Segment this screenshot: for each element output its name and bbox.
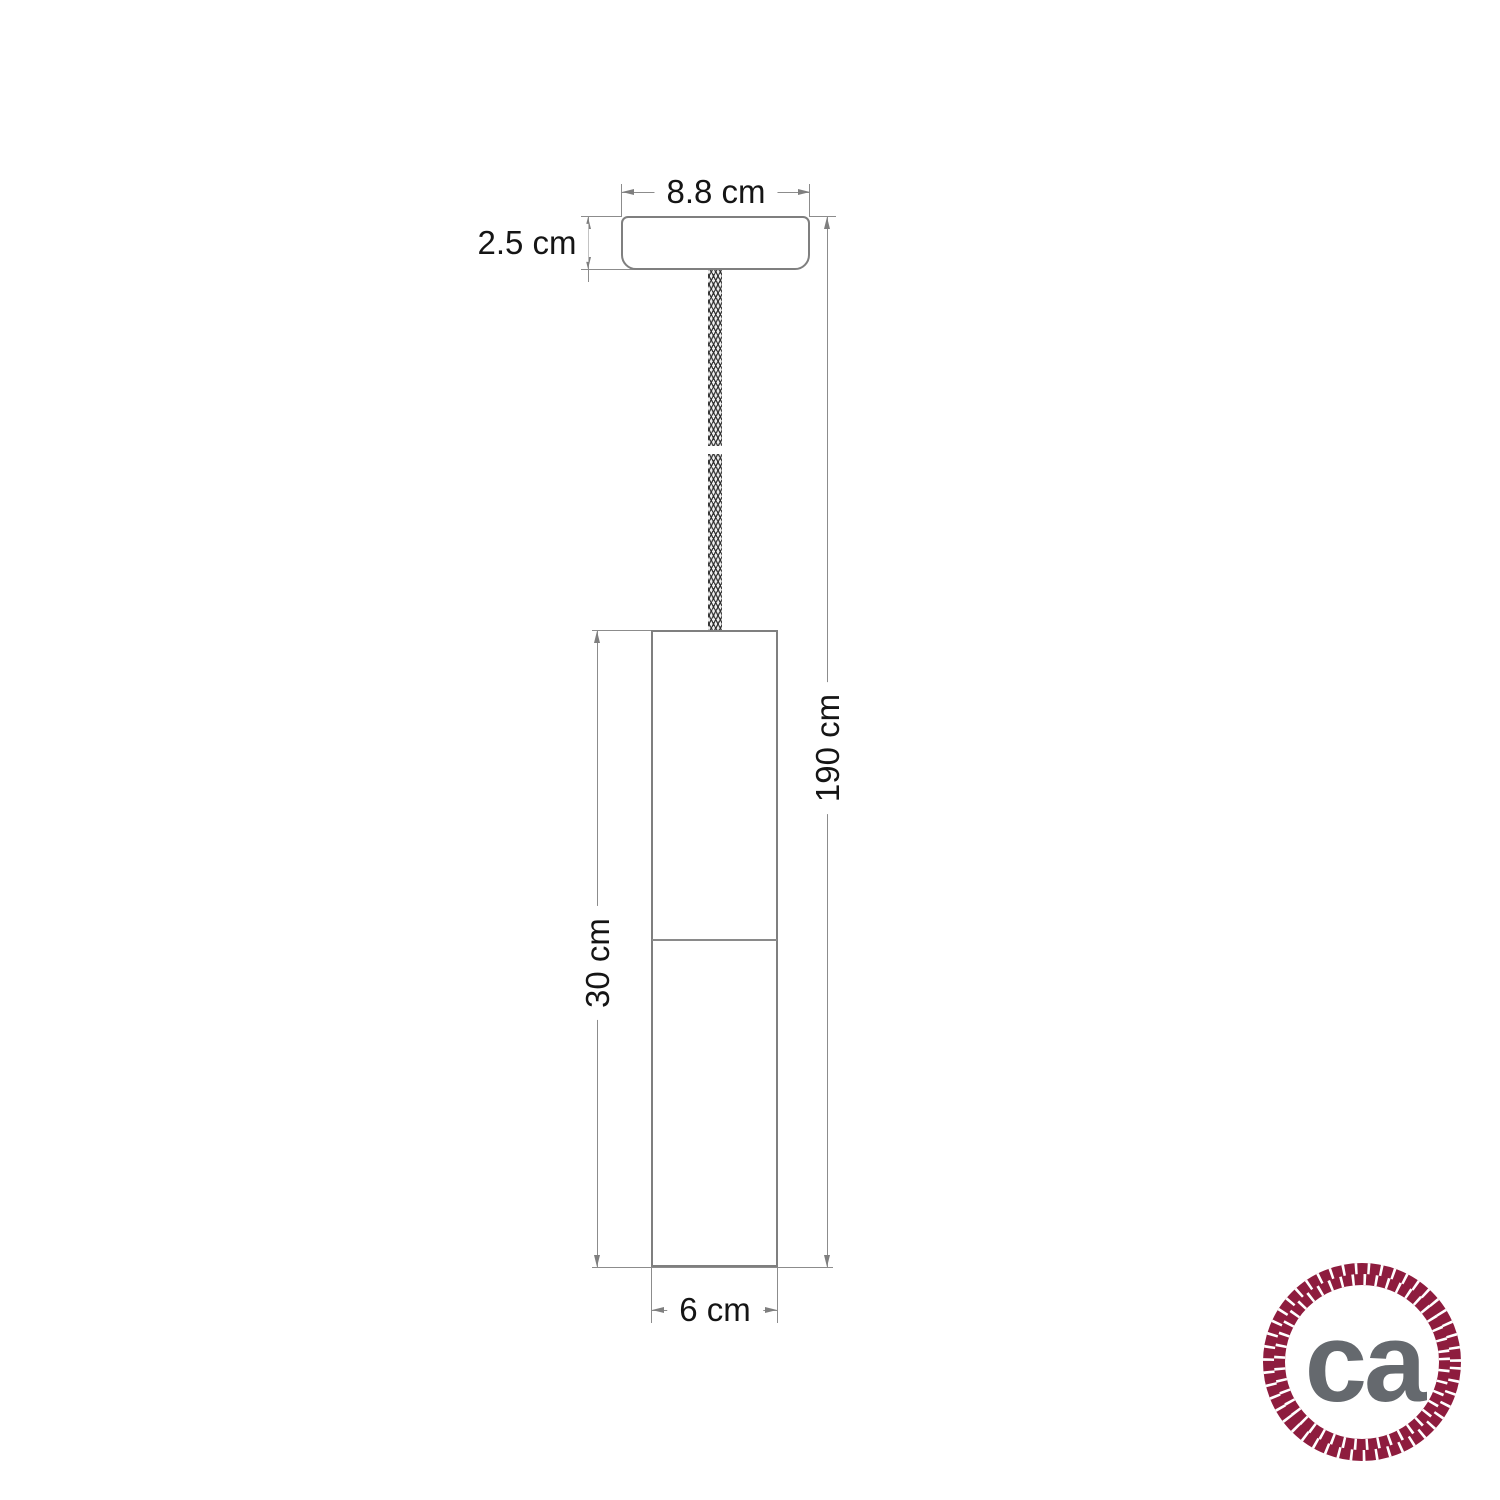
canopy-height-label: 2.5 cm xyxy=(465,224,588,262)
shade-height-label: 30 cm xyxy=(578,906,616,1020)
logo-letters: ca xyxy=(1305,1300,1427,1425)
ext-line-diameter-right xyxy=(777,1267,779,1323)
arrow-up-icon xyxy=(824,217,830,229)
arrow-down-icon xyxy=(594,1255,600,1267)
arrow-left-icon xyxy=(622,189,634,195)
rope-circle-icon: ca xyxy=(1262,1262,1462,1462)
textile-cable-lower-segment xyxy=(708,454,722,632)
dimension-diagram-canvas: 8.8 cm 2.5 cm 190 cm 30 cm 6 cm ca xyxy=(0,0,1500,1500)
shade-seam-line xyxy=(652,939,777,941)
arrow-right-icon xyxy=(798,189,810,195)
total-drop-label: 190 cm xyxy=(808,682,846,814)
ext-line-diameter-left xyxy=(651,1267,653,1323)
arrow-right-icon xyxy=(765,1307,777,1313)
textile-cable-upper-segment xyxy=(708,268,722,446)
arrow-down-icon xyxy=(824,1255,830,1267)
canopy-width-label: 8.8 cm xyxy=(654,173,777,211)
arrow-up-icon xyxy=(594,631,600,643)
arrow-left-icon xyxy=(652,1307,664,1313)
ext-line-shade-top xyxy=(592,630,651,632)
ceiling-canopy xyxy=(621,216,810,270)
creative-cables-logo: ca xyxy=(1262,1262,1462,1462)
shade-diameter-label: 6 cm xyxy=(667,1291,763,1329)
cylindrical-shade xyxy=(651,630,778,1267)
